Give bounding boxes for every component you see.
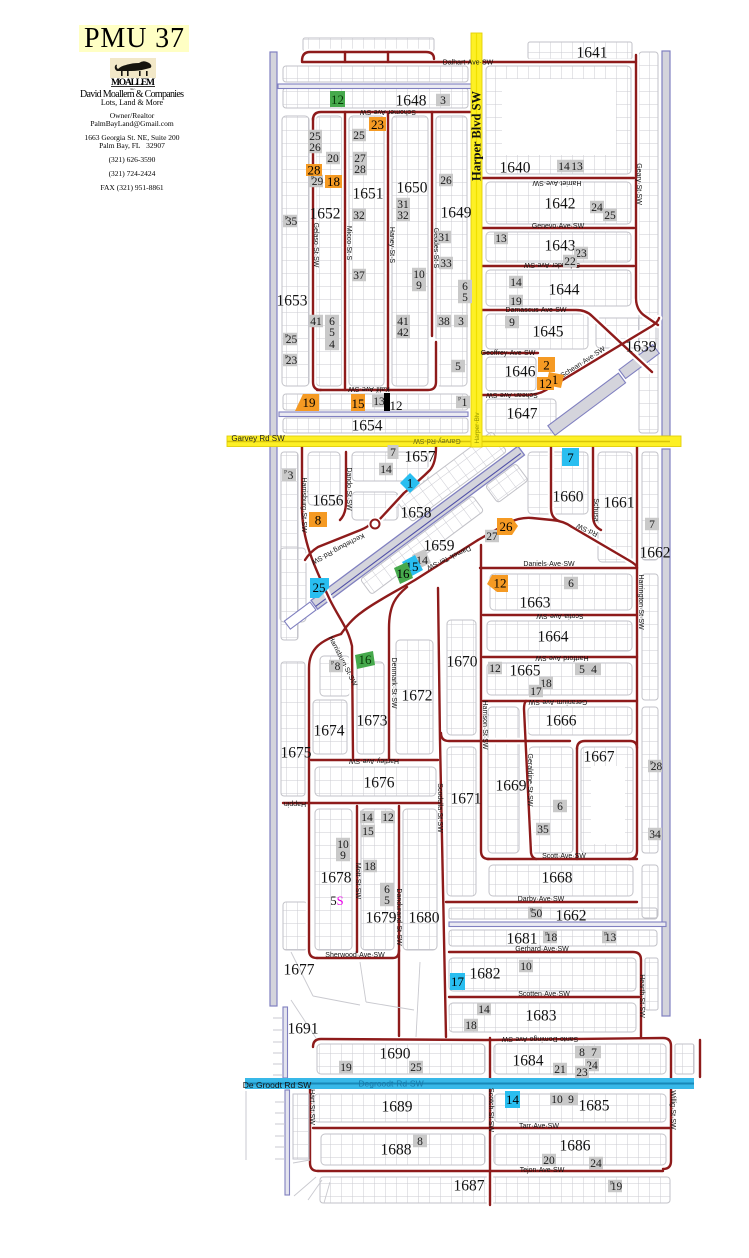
svg-text:14: 14 [506, 1092, 520, 1107]
svg-text:(321) 626-3590: (321) 626-3590 [109, 155, 156, 164]
svg-text:Scotia·Ave·SW: Scotia·Ave·SW [536, 612, 584, 619]
svg-text:13: 13 [571, 161, 583, 173]
svg-text:Lots, Land & More: Lots, Land & More [101, 98, 164, 107]
svg-text:19: 19 [510, 296, 522, 308]
svg-text:20: 20 [327, 153, 339, 165]
svg-text:Hearth·St·SW: Hearth·St·SW [638, 974, 645, 1018]
svg-text:1657: 1657 [405, 448, 436, 465]
svg-text:Daniels·Ave·SW: Daniels·Ave·SW [523, 561, 575, 568]
svg-text:3: 3 [458, 316, 464, 328]
svg-text:6: 6 [568, 578, 574, 590]
svg-text:Gelaso·St·SW: Gelaso·St·SW [312, 223, 319, 268]
svg-text:Schusa: Schusa [592, 498, 599, 521]
svg-text:18: 18 [465, 1020, 477, 1032]
svg-text:1653: 1653 [277, 292, 308, 309]
svg-text:1673: 1673 [357, 712, 388, 729]
svg-text:1665: 1665 [510, 662, 541, 679]
svg-text:1690: 1690 [380, 1045, 411, 1062]
svg-text:1680: 1680 [409, 909, 440, 926]
svg-text:Hart·St·SW: Hart·St·SW [308, 1089, 315, 1125]
svg-text:1663: 1663 [520, 594, 551, 611]
svg-text:1670: 1670 [447, 653, 478, 670]
svg-text:8: 8 [579, 1047, 585, 1059]
svg-text:Geranium·Ave·SW: Geranium·Ave·SW [528, 698, 587, 705]
svg-text:12: 12 [494, 576, 507, 591]
svg-text:P: P [331, 661, 334, 667]
svg-text:1691: 1691 [288, 1020, 319, 1037]
svg-text:De Groodt Rd SW: De Groodt Rd SW [243, 1080, 312, 1090]
svg-text:3: 3 [440, 95, 446, 107]
svg-text:Scodella·St·SW: Scodella·St·SW [436, 783, 443, 833]
svg-text:10: 10 [520, 961, 532, 973]
svg-text:8: 8 [315, 513, 322, 528]
svg-text:18: 18 [546, 932, 558, 944]
svg-text:28: 28 [354, 164, 366, 176]
svg-text:1674: 1674 [314, 722, 345, 739]
svg-text:1656: 1656 [313, 492, 344, 509]
svg-text:32: 32 [397, 210, 409, 222]
svg-text:Geoffrey·Ave·SW: Geoffrey·Ave·SW [481, 350, 536, 357]
svg-text:31: 31 [438, 232, 450, 244]
svg-text:28: 28 [308, 163, 321, 178]
svg-text:12: 12 [539, 376, 552, 391]
svg-text:1643: 1643 [545, 237, 576, 254]
svg-text:1688: 1688 [381, 1141, 412, 1158]
svg-text:12: 12 [382, 812, 394, 824]
svg-text:23: 23 [576, 1067, 588, 1079]
svg-text:1652: 1652 [310, 205, 341, 222]
svg-text:19: 19 [303, 395, 316, 410]
svg-text:Genevo·Ave·SW: Genevo·Ave·SW [532, 223, 585, 230]
svg-text:1662: 1662 [640, 544, 671, 561]
svg-text:19: 19 [611, 1181, 623, 1193]
svg-text:PMU 37: PMU 37 [84, 23, 184, 54]
svg-text:1640: 1640 [500, 159, 531, 176]
svg-text:Willig·St·SW: Willig·St·SW [669, 1090, 676, 1130]
svg-text:Santo·Domingo·Ave·SW: Santo·Domingo·Ave·SW [501, 1035, 578, 1042]
svg-text:9: 9 [340, 850, 346, 862]
svg-text:Haney·St·S: Haney·St·S [388, 227, 395, 264]
svg-text:Harrington·St·SW: Harrington·St·SW [637, 574, 644, 630]
svg-text:14: 14 [478, 1004, 490, 1016]
svg-text:33: 33 [440, 258, 452, 270]
svg-text:8: 8 [417, 1136, 423, 1148]
svg-text:1678: 1678 [321, 869, 352, 886]
svg-text:1687: 1687 [454, 1177, 485, 1194]
svg-text:Palm Bay, FL 32907: Palm Bay, FL 32907 [99, 141, 165, 150]
svg-text:25: 25 [353, 130, 365, 142]
svg-text:27: 27 [486, 531, 498, 543]
svg-text:14: 14 [558, 161, 570, 173]
svg-text:15: 15 [352, 396, 365, 411]
svg-text:Harrison·St·SW: Harrison·St·SW [481, 700, 488, 749]
svg-text:1683: 1683 [526, 1007, 557, 1024]
svg-text:1: 1 [407, 476, 414, 491]
svg-text:7: 7 [591, 1047, 597, 1059]
svg-text:7: 7 [649, 519, 655, 531]
svg-text:35: 35 [286, 216, 298, 228]
svg-text:1684: 1684 [513, 1052, 544, 1069]
svg-text:38: 38 [438, 316, 450, 328]
svg-text:12: 12 [390, 398, 403, 413]
svg-text:Sherwood·Ave·SW: Sherwood·Ave·SW [325, 952, 385, 959]
svg-text:6: 6 [557, 801, 563, 813]
svg-text:Micco·St·S: Micco·St·S [345, 226, 352, 261]
svg-text:16: 16 [359, 652, 373, 667]
svg-text:Degroodt·Rd·SW: Degroodt·Rd·SW [358, 1079, 423, 1089]
svg-text:14: 14 [361, 812, 373, 824]
svg-text:1659: 1659 [424, 537, 455, 554]
svg-text:Geary·St·SW: Geary·St·SW [635, 163, 642, 205]
svg-text:Damascus·Ave·SW: Damascus·Ave·SW [506, 307, 567, 314]
svg-text:3: 3 [288, 470, 294, 482]
svg-text:23: 23 [575, 248, 587, 260]
svg-text:1689: 1689 [382, 1098, 413, 1115]
svg-text:26: 26 [500, 519, 514, 534]
svg-text:FAX (321) 951-8861: FAX (321) 951-8861 [100, 183, 163, 192]
svg-text:14: 14 [380, 464, 392, 476]
svg-text:14: 14 [510, 277, 522, 289]
svg-text:Schean·Ave·SW: Schean·Ave·SW [486, 391, 538, 398]
svg-text:1662: 1662 [556, 907, 587, 924]
svg-text:Darby·Ave·SW: Darby·Ave·SW [518, 896, 565, 903]
svg-text:1660: 1660 [553, 488, 584, 505]
svg-text:Harriet·Ave·SW: Harriet·Ave·SW [532, 179, 581, 186]
svg-text:Tarr·Ave·SW: Tarr·Ave·SW [519, 1123, 559, 1130]
svg-text:1671: 1671 [451, 790, 482, 807]
svg-text:15: 15 [362, 826, 374, 838]
svg-text:Denmark·St·SW: Denmark·St·SW [390, 658, 397, 709]
svg-text:26: 26 [440, 175, 452, 187]
svg-text:41: 41 [310, 316, 322, 328]
svg-text:(321) 724-2424: (321) 724-2424 [109, 169, 156, 178]
svg-text:1666: 1666 [546, 712, 577, 729]
svg-text:1685: 1685 [579, 1097, 610, 1114]
svg-text:Garvey Rd SW: Garvey Rd SW [231, 434, 285, 443]
svg-text:5: 5 [455, 361, 461, 373]
svg-text:13: 13 [373, 396, 385, 408]
svg-text:17: 17 [530, 686, 542, 698]
svg-text:Mott·St·SW: Mott·St·SW [354, 863, 361, 900]
svg-text:20: 20 [543, 1155, 555, 1167]
svg-text:1649: 1649 [441, 204, 472, 221]
svg-text:1654: 1654 [352, 417, 383, 434]
svg-text:2: 2 [543, 358, 550, 373]
svg-text:1641: 1641 [577, 44, 608, 61]
svg-text:Tejon·Ave·SW: Tejon·Ave·SW [520, 1167, 565, 1174]
svg-text:35: 35 [537, 824, 549, 836]
svg-text:24: 24 [590, 1158, 602, 1170]
svg-text:21: 21 [554, 1064, 566, 1076]
svg-text:18: 18 [327, 174, 340, 189]
svg-text:Harrisburg·St·SW: Harrisburg·St·SW [300, 477, 307, 533]
svg-text:13: 13 [605, 932, 617, 944]
svg-text:1672: 1672 [402, 687, 433, 704]
svg-text:Scott·Ave·SW: Scott·Ave·SW [542, 853, 586, 860]
svg-text:1669: 1669 [496, 777, 527, 794]
svg-text:9: 9 [568, 1094, 574, 1106]
svg-text:25: 25 [313, 580, 326, 595]
svg-text:1648: 1648 [396, 92, 427, 109]
svg-text:Scotch·St·SW: Scotch·St·SW [487, 1088, 494, 1132]
svg-text:1676: 1676 [364, 774, 395, 791]
svg-text:5: 5 [329, 327, 335, 339]
svg-text:18: 18 [364, 861, 376, 873]
svg-text:1642: 1642 [545, 195, 576, 212]
svg-text:Happin: Happin [284, 800, 306, 807]
svg-text:28: 28 [651, 761, 663, 773]
svg-text:7: 7 [567, 450, 574, 465]
svg-text:25: 25 [604, 210, 616, 222]
svg-text:1646: 1646 [505, 363, 536, 380]
svg-text:1658: 1658 [401, 504, 432, 521]
svg-text:1639: 1639 [626, 338, 657, 355]
svg-text:1675: 1675 [281, 744, 312, 761]
svg-text:12: 12 [489, 663, 501, 675]
svg-text:1: 1 [462, 397, 468, 409]
svg-text:4: 4 [329, 339, 335, 351]
svg-text:24: 24 [591, 202, 603, 214]
svg-text:Garvey·Rd·SW: Garvey·Rd·SW [413, 437, 461, 444]
svg-text:Dalhart·Ave·SW: Dalhart·Ave·SW [443, 60, 494, 67]
svg-text:29: 29 [312, 176, 324, 188]
svg-text:4: 4 [591, 664, 597, 676]
svg-text:9: 9 [416, 280, 422, 292]
svg-text:1667: 1667 [584, 748, 615, 765]
svg-text:7: 7 [390, 447, 396, 459]
svg-text:Harper Blvd SW: Harper Blvd SW [470, 90, 484, 181]
svg-text:5: 5 [462, 292, 468, 304]
svg-text:1644: 1644 [549, 281, 580, 298]
svg-text:1661: 1661 [604, 494, 635, 511]
svg-text:17: 17 [451, 974, 465, 989]
svg-text:Scotten·Ave·SW: Scotten·Ave·SW [518, 991, 570, 998]
svg-text:34: 34 [649, 829, 661, 841]
svg-text:8: 8 [335, 661, 341, 673]
svg-text:37: 37 [353, 270, 365, 282]
svg-text:1682: 1682 [470, 965, 501, 982]
svg-text:1645: 1645 [533, 323, 564, 340]
svg-text:23: 23 [286, 355, 298, 367]
svg-text:1679: 1679 [366, 909, 397, 926]
svg-text:22: 22 [564, 256, 576, 268]
svg-text:1677: 1677 [284, 961, 315, 978]
svg-text:1686: 1686 [560, 1137, 591, 1154]
svg-text:9: 9 [509, 317, 515, 329]
svg-text:Dando·St·SW: Dando·St·SW [345, 467, 352, 511]
svg-text:5: 5 [579, 664, 585, 676]
svg-text:1681: 1681 [507, 930, 538, 947]
svg-text:Kalif·Ave·SW: Kalif·Ave·SW [348, 385, 390, 392]
svg-text:25: 25 [286, 334, 298, 346]
svg-text:26: 26 [309, 142, 321, 154]
svg-text:5: 5 [384, 895, 390, 907]
svg-text:5S: 5S [330, 894, 343, 908]
svg-text:13: 13 [495, 233, 507, 245]
svg-text:PalmBayLand@Gmail.com: PalmBayLand@Gmail.com [90, 119, 174, 128]
svg-text:42: 42 [397, 327, 409, 339]
svg-text:Geraldine·St·SW: Geraldine·St·SW [526, 754, 533, 807]
svg-text:1664: 1664 [538, 628, 569, 645]
svg-text:23: 23 [371, 117, 384, 132]
svg-text:P: P [458, 397, 461, 403]
svg-text:P: P [284, 470, 287, 476]
svg-text:1647: 1647 [507, 405, 538, 422]
svg-text:Harper·Blv: Harper·Blv [474, 412, 481, 444]
svg-text:19: 19 [340, 1062, 352, 1074]
svg-text:12: 12 [331, 92, 344, 107]
svg-text:50: 50 [531, 908, 543, 920]
svg-text:1650: 1650 [397, 179, 428, 196]
svg-text:1651: 1651 [353, 185, 384, 202]
svg-text:25: 25 [410, 1062, 422, 1074]
svg-text:32: 32 [353, 210, 365, 222]
svg-text:Hartford·Ave·SW: Hartford·Ave·SW [535, 654, 589, 661]
svg-text:16: 16 [397, 566, 411, 581]
svg-text:10: 10 [551, 1094, 563, 1106]
svg-text:1668: 1668 [542, 869, 573, 886]
svg-text:Hartley·Ave·SW: Hartley·Ave·SW [349, 757, 399, 764]
